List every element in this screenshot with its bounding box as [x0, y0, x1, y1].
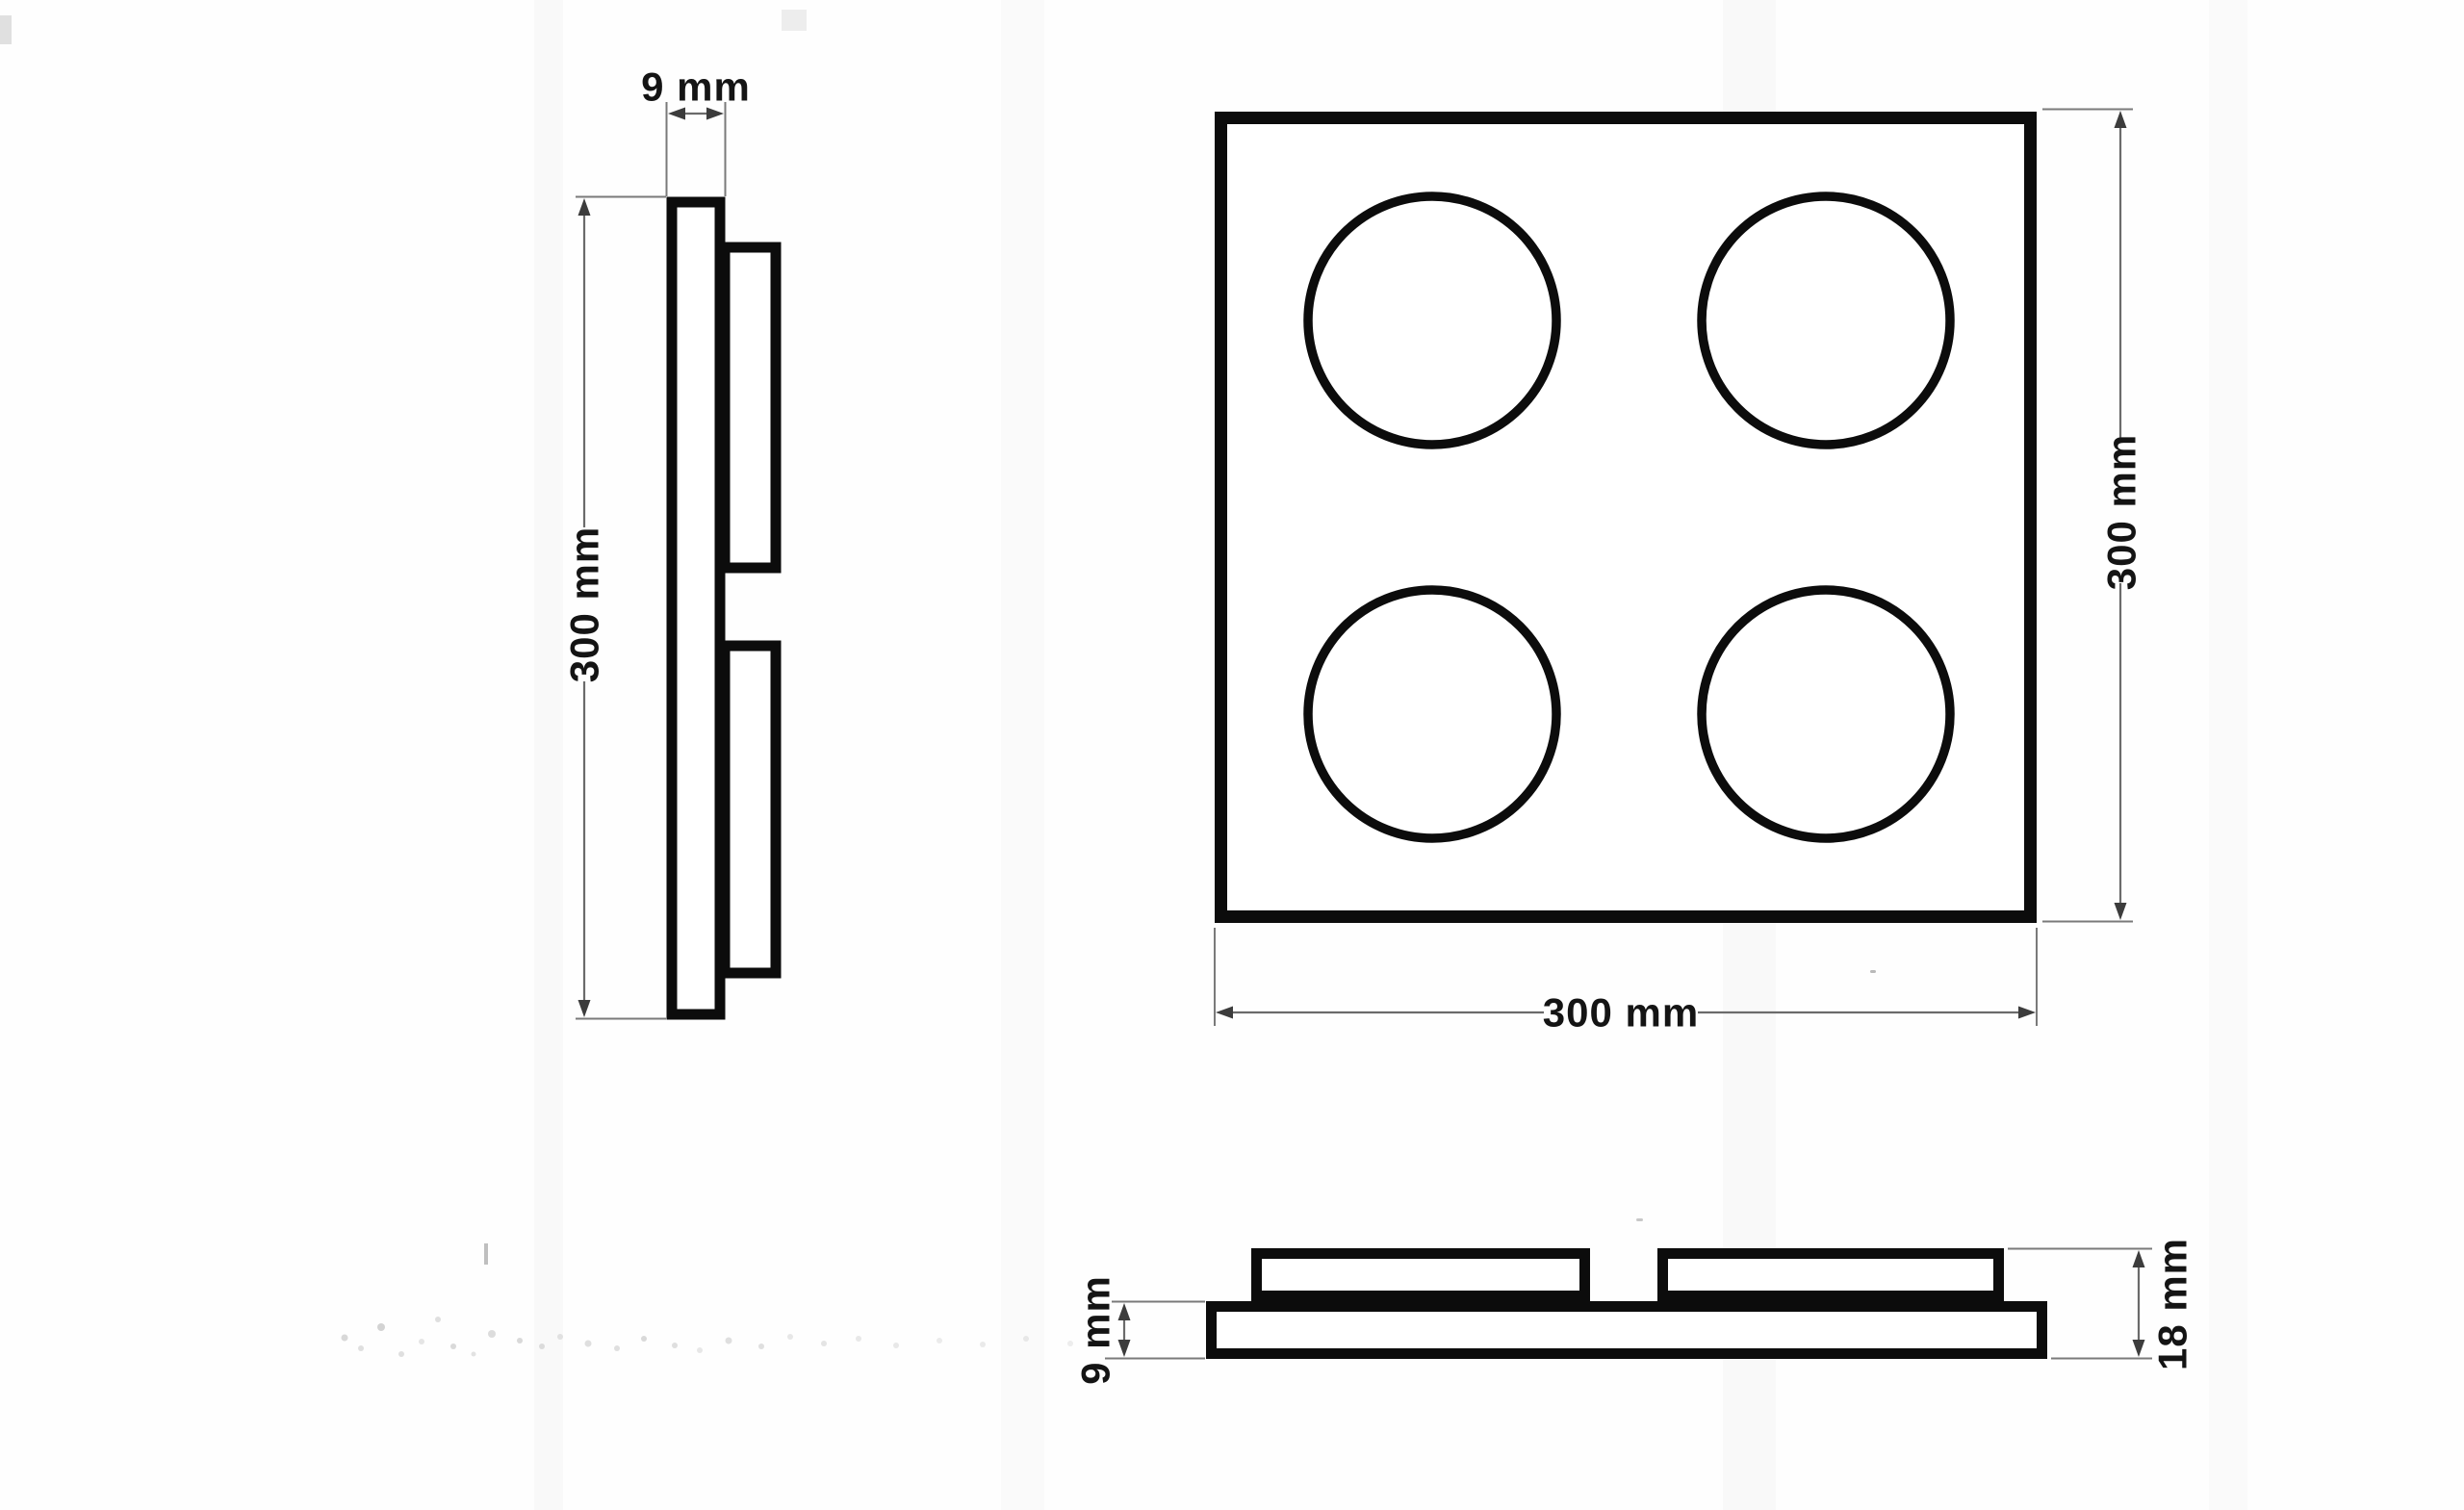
front-view-circle-bottom-right	[1702, 590, 1950, 838]
bottom-view-right-pad	[1663, 1254, 1999, 1296]
scan-band	[2209, 0, 2247, 1510]
bottom-view-base	[1212, 1307, 2042, 1354]
dim-side-height-label: 300 mm	[562, 526, 607, 682]
arrowhead-up-icon	[578, 198, 591, 216]
front-view	[1221, 118, 2031, 917]
scan-band	[1001, 0, 1044, 1510]
dim-bottom-base-thickness: 9 mm	[1073, 1275, 1206, 1385]
side-view-lower-pad	[725, 646, 776, 973]
arrowhead-up-icon	[2133, 1250, 2145, 1267]
bottom-view	[1212, 1254, 2042, 1354]
arrowhead-up-icon	[2115, 111, 2127, 128]
bottom-view-left-pad	[1257, 1254, 1585, 1296]
arrowhead-right-icon	[2018, 1007, 2036, 1019]
scan-dash	[484, 1243, 488, 1265]
scan-smudge	[782, 10, 807, 31]
scan-smudge	[0, 15, 12, 44]
side-view-plate	[672, 202, 720, 1014]
scan-band	[534, 0, 563, 1510]
side-view	[672, 202, 776, 1014]
dim-side-thickness: 9 mm	[641, 64, 751, 197]
side-view-upper-pad	[725, 247, 776, 568]
dim-front-height-label: 300 mm	[2099, 434, 2144, 590]
dim-front-width-label: 300 mm	[1543, 990, 1699, 1036]
scan-speck	[1636, 1218, 1643, 1221]
dim-bottom-base-thickness-label: 9 mm	[1073, 1275, 1118, 1385]
dim-side-thickness-label: 9 mm	[641, 64, 751, 110]
scan-speck	[1870, 970, 1876, 973]
arrowhead-down-icon	[1118, 1340, 1131, 1357]
arrowhead-down-icon	[2133, 1340, 2145, 1357]
watermark-remnant	[342, 1317, 1074, 1357]
arrowhead-down-icon	[2115, 903, 2127, 920]
front-view-circle-bottom-left	[1308, 590, 1556, 838]
arrowhead-left-icon	[1216, 1007, 1233, 1019]
dim-bottom-total-thickness-label: 18 mm	[2150, 1238, 2195, 1370]
technical-drawing: 9 mm 300 mm 300 mm	[0, 0, 2464, 1510]
arrowhead-down-icon	[578, 1000, 591, 1017]
arrowhead-up-icon	[1118, 1303, 1131, 1320]
front-view-circle-top-right	[1702, 196, 1950, 445]
dim-front-width: 300 mm	[1215, 928, 2037, 1036]
dim-front-height: 300 mm	[2042, 110, 2144, 922]
drawing-sheet: 9 mm 300 mm 300 mm	[0, 0, 2464, 1510]
dim-side-height: 300 mm	[562, 197, 667, 1019]
front-view-circle-top-left	[1308, 196, 1556, 445]
